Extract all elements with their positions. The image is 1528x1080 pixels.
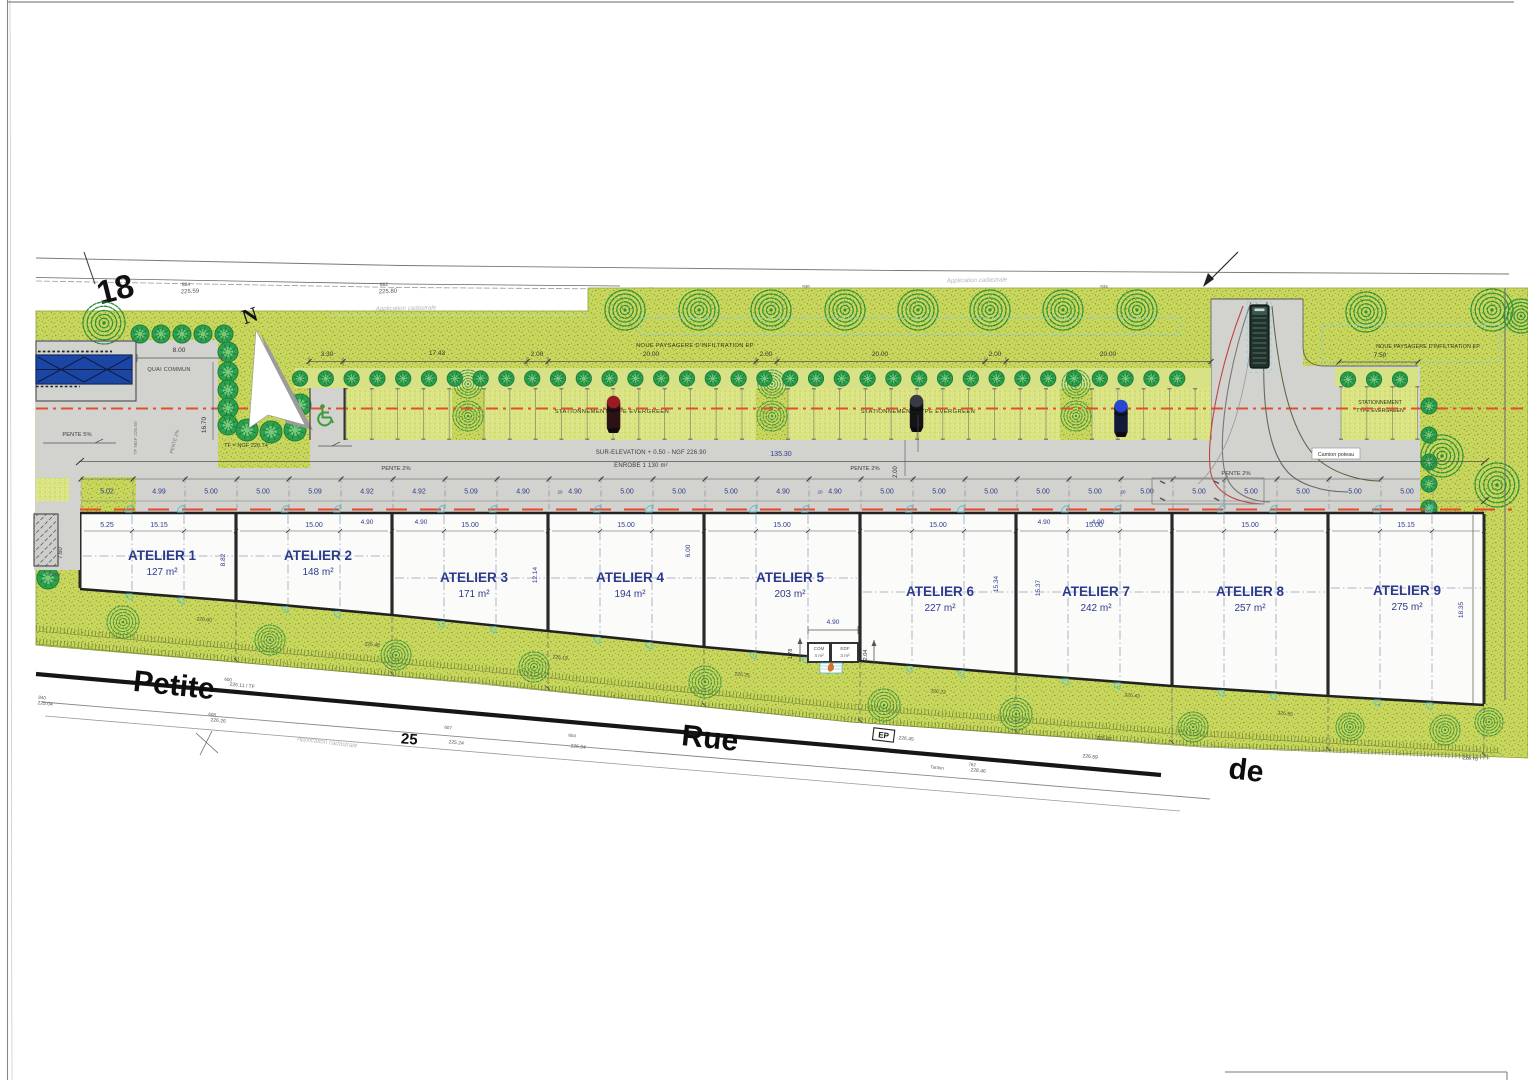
svg-text:5.00: 5.00 <box>1036 489 1050 496</box>
svg-text:15.37: 15.37 <box>1035 579 1042 596</box>
svg-text:5.00: 5.00 <box>984 489 998 496</box>
svg-text:TF = NGF 226.74: TF = NGF 226.74 <box>224 443 268 449</box>
svg-text:7.60: 7.60 <box>58 547 64 559</box>
svg-text:ATELIER 3: ATELIER 3 <box>440 570 508 585</box>
svg-text:2.00: 2.00 <box>760 351 773 358</box>
svg-text:4.99: 4.99 <box>152 489 166 496</box>
svg-text:5.25: 5.25 <box>100 522 114 529</box>
svg-text:604: 604 <box>568 733 576 739</box>
svg-text:3.30: 3.30 <box>321 351 334 358</box>
svg-text:25: 25 <box>400 730 418 748</box>
svg-text:15.00: 15.00 <box>773 522 791 529</box>
svg-text:3 m²: 3 m² <box>840 653 850 658</box>
svg-text:5.09: 5.09 <box>308 489 322 496</box>
svg-text:ATELIER 5: ATELIER 5 <box>756 570 824 585</box>
svg-text:17.43: 17.43 <box>429 350 446 357</box>
svg-text:5.09: 5.09 <box>464 489 478 496</box>
svg-text:ATELIER 8: ATELIER 8 <box>1216 584 1284 599</box>
svg-text:EDF: EDF <box>840 646 849 651</box>
svg-text:COM: COM <box>814 646 825 651</box>
svg-text:Application cadastrale: Application cadastrale <box>946 276 1008 284</box>
svg-text:227 m²: 227 m² <box>924 603 956 614</box>
svg-text:15.00: 15.00 <box>1241 522 1259 529</box>
svg-text:5.00: 5.00 <box>1244 489 1258 496</box>
svg-text:242 m²: 242 m² <box>1080 603 1112 614</box>
svg-text:5.00: 5.00 <box>724 489 738 496</box>
svg-text:5.00: 5.00 <box>1348 489 1362 496</box>
svg-text:5.00: 5.00 <box>1192 489 1206 496</box>
svg-text:ATELIER 4: ATELIER 4 <box>596 570 664 585</box>
svg-text:20.00: 20.00 <box>1100 351 1117 358</box>
svg-text:ATELIER 1: ATELIER 1 <box>128 548 196 563</box>
svg-text:4.90: 4.90 <box>361 519 374 526</box>
svg-text:STATIONNEMENT: STATIONNEMENT <box>1358 400 1402 406</box>
svg-text:135.30: 135.30 <box>770 451 792 458</box>
svg-text:4.90: 4.90 <box>415 519 428 526</box>
svg-text:20: 20 <box>817 490 823 495</box>
svg-text:ATELIER 2: ATELIER 2 <box>284 548 352 563</box>
svg-text:4.90: 4.90 <box>1038 519 1051 526</box>
svg-text:5.00: 5.00 <box>204 489 218 496</box>
svg-text:6.00: 6.00 <box>685 544 692 557</box>
svg-text:SUR-ELEVATION + 0.50 - NGF 226: SUR-ELEVATION + 0.50 - NGF 226.90 <box>596 450 707 456</box>
svg-text:15.15: 15.15 <box>1397 522 1415 529</box>
svg-text:4.90: 4.90 <box>516 489 530 496</box>
svg-text:ATELIER 7: ATELIER 7 <box>1062 584 1130 599</box>
svg-text:607: 607 <box>444 725 452 731</box>
svg-text:4.90: 4.90 <box>568 489 582 496</box>
svg-text:NOUE PAYSAGERE D'INFILTRATION: NOUE PAYSAGERE D'INFILTRATION EP <box>1376 344 1480 350</box>
svg-text:PENTE 5%: PENTE 5% <box>62 432 91 438</box>
svg-text:20.00: 20.00 <box>872 351 889 358</box>
svg-text:15.34: 15.34 <box>993 575 1000 592</box>
svg-text:5.00: 5.00 <box>256 489 270 496</box>
svg-text:de: de <box>1227 752 1266 789</box>
svg-text:PENTE 2%: PENTE 2% <box>850 466 879 472</box>
svg-text:5.00: 5.00 <box>1400 489 1414 496</box>
svg-text:4.90: 4.90 <box>828 489 842 496</box>
svg-text:5.00: 5.00 <box>932 489 946 496</box>
svg-text:8.82: 8.82 <box>220 553 227 566</box>
svg-text:15.00: 15.00 <box>929 522 947 529</box>
svg-text:5.00: 5.00 <box>620 489 634 496</box>
svg-text:257 m²: 257 m² <box>1234 603 1266 614</box>
svg-text:4 m²: 4 m² <box>814 653 824 658</box>
svg-text:194 m²: 194 m² <box>614 589 646 600</box>
svg-text:2.00: 2.00 <box>531 351 544 358</box>
svg-text:5.00: 5.00 <box>880 489 894 496</box>
svg-text:15.00: 15.00 <box>461 522 479 529</box>
svg-text:5.02: 5.02 <box>100 489 114 496</box>
svg-text:4.90: 4.90 <box>1092 519 1105 526</box>
svg-text:4.92: 4.92 <box>412 489 426 496</box>
svg-text:7.50: 7.50 <box>1374 352 1387 359</box>
svg-text:2.00: 2.00 <box>893 466 899 478</box>
svg-text:862: 862 <box>380 282 389 288</box>
svg-text:4.90: 4.90 <box>776 489 790 496</box>
svg-text:Rue: Rue <box>680 719 740 758</box>
svg-text:20: 20 <box>1120 490 1126 495</box>
svg-text:4.92: 4.92 <box>360 489 374 496</box>
svg-text:12.14: 12.14 <box>532 566 539 583</box>
svg-text:15.15: 15.15 <box>150 522 168 529</box>
svg-text:QUAI COMMUN: QUAI COMMUN <box>147 367 190 373</box>
svg-text:5.00: 5.00 <box>1088 489 1102 496</box>
svg-text:5.00: 5.00 <box>1296 489 1310 496</box>
svg-text:ATELIER 9: ATELIER 9 <box>1373 583 1441 598</box>
svg-text:127 m²: 127 m² <box>146 567 178 578</box>
svg-text:2.00: 2.00 <box>989 351 1002 358</box>
svg-text:225.80: 225.80 <box>379 289 398 296</box>
svg-text:203 m²: 203 m² <box>774 589 806 600</box>
svg-text:18.35: 18.35 <box>1458 601 1465 618</box>
svg-text:8.00: 8.00 <box>173 347 186 354</box>
svg-text:EP: EP <box>878 730 890 740</box>
svg-text:PENTE 2%: PENTE 2% <box>381 466 410 472</box>
svg-text:1.78: 1.78 <box>788 649 794 660</box>
svg-text:2.04: 2.04 <box>863 650 869 661</box>
svg-text:NOUE PAYSAGERE D'INFILTRATION: NOUE PAYSAGERE D'INFILTRATION EP <box>636 343 754 349</box>
svg-text:TF NGF 226.60: TF NGF 226.60 <box>133 421 139 455</box>
svg-text:15.00: 15.00 <box>617 522 635 529</box>
svg-text:884: 884 <box>182 282 191 288</box>
svg-text:ATELIER 6: ATELIER 6 <box>906 584 974 599</box>
svg-text:ENROBE 1 130 m²: ENROBE 1 130 m² <box>614 463 668 469</box>
svg-text:20.00: 20.00 <box>643 351 660 358</box>
svg-text:148 m²: 148 m² <box>302 567 334 578</box>
svg-text:275 m²: 275 m² <box>1391 602 1423 613</box>
svg-text:5.00: 5.00 <box>672 489 686 496</box>
svg-text:4.90: 4.90 <box>827 619 840 626</box>
svg-text:16.70: 16.70 <box>201 416 208 433</box>
svg-text:225.59: 225.59 <box>181 289 200 296</box>
svg-text:Camion poteau: Camion poteau <box>1318 452 1355 458</box>
svg-text:171 m²: 171 m² <box>458 589 490 600</box>
svg-text:20: 20 <box>557 490 563 495</box>
svg-text:15.00: 15.00 <box>305 522 323 529</box>
